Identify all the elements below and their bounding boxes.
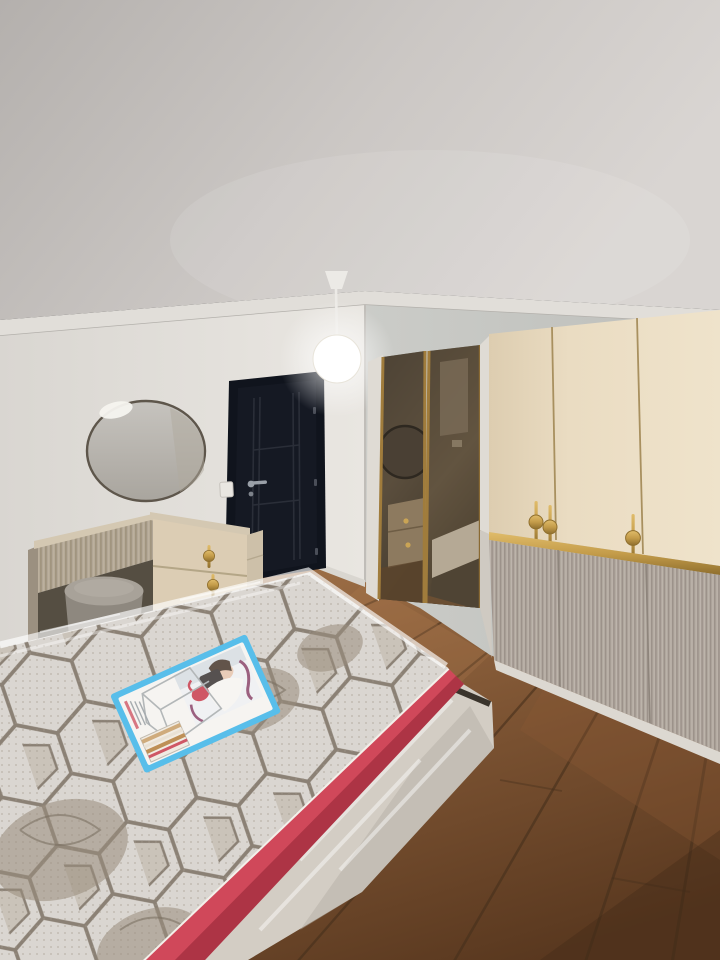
- mirror-door-left-gold-edge-b: [424, 351, 425, 603]
- door-keyhole: [249, 492, 254, 497]
- wardrobe-divider: [480, 336, 489, 534]
- bedroom-scene: [0, 0, 720, 960]
- bedroom-photo: [0, 0, 720, 960]
- wardrobe-mirror-door-right: [426, 345, 480, 615]
- wardrobe-mirror-door-left: [379, 351, 431, 611]
- pouf-top-sheen: [74, 579, 134, 597]
- mirror-door-right-reflection: [426, 345, 480, 615]
- wardrobe-cream-doors: [489, 310, 720, 566]
- light-switch: [220, 482, 234, 498]
